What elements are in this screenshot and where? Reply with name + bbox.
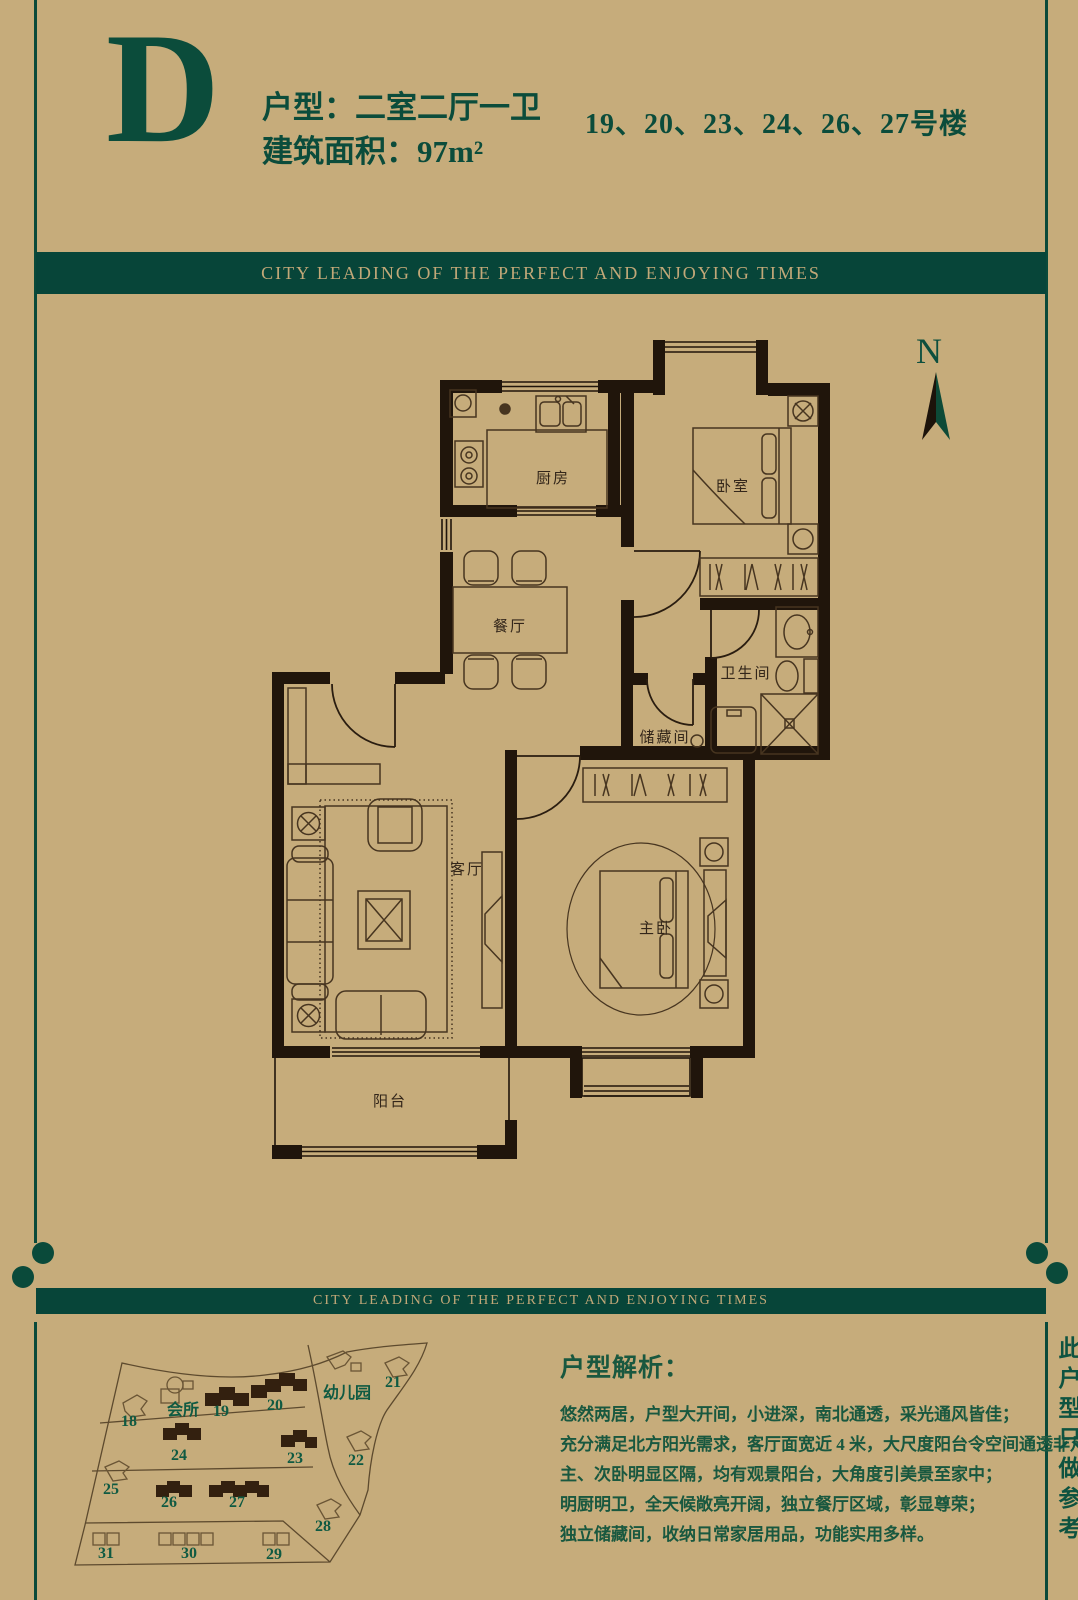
site-building-29 <box>263 1533 289 1545</box>
site-label-28: 28 <box>315 1518 331 1535</box>
site-building-20 <box>251 1373 307 1398</box>
analysis-line: 独立储藏间，收纳日常家居用品，功能实用多样。 <box>560 1520 1030 1550</box>
site-building-30 <box>159 1533 213 1545</box>
site-label-22: 22 <box>348 1452 364 1469</box>
unit-area-line: 建筑面积：97m² <box>262 126 483 171</box>
site-label-30: 30 <box>181 1545 197 1562</box>
room-label-living: 客厅 <box>450 861 484 878</box>
analysis-line: 悠然两居，户型大开间，小进深，南北通透，采光通风皆佳； <box>560 1400 1030 1430</box>
right-outer-dot <box>1046 1262 1068 1284</box>
room-label-storage: 储藏间 <box>639 729 690 746</box>
site-label-20: 20 <box>267 1397 283 1414</box>
site-building-24 <box>163 1423 201 1440</box>
site-building-clubhouse <box>161 1377 193 1403</box>
floor-plan-walls <box>272 340 830 1159</box>
left-inner-dot <box>32 1242 54 1264</box>
site-label-19: 19 <box>213 1403 229 1420</box>
site-label-26: 26 <box>161 1494 177 1511</box>
unit-type-letter: D <box>106 10 220 168</box>
side-note-vertical: 此户型只做参考 <box>1050 1336 1078 1546</box>
bottom-banner: CITY LEADING OF THE PERFECT AND ENJOYING… <box>36 1288 1046 1314</box>
site-label-25: 25 <box>103 1481 119 1498</box>
room-label-kitchen: 厨房 <box>536 470 570 487</box>
site-plan-outline-buildings <box>93 1351 409 1545</box>
flyer-page: { "page": { "bg": "#c6ac7b", "accent_gre… <box>0 0 1078 1600</box>
floor-plan: 厨房 卧室 餐厅 卫生间 储藏间 客厅 主卧 阳台 <box>258 328 842 1168</box>
room-label-dining: 餐厅 <box>493 618 527 635</box>
site-label-31: 31 <box>98 1545 114 1562</box>
analysis-block: 户型解析： 悠然两居，户型大开间，小进深，南北通透，采光通风皆佳； 充分满足北方… <box>560 1348 1030 1550</box>
site-building-31 <box>93 1533 119 1545</box>
right-frame-line-bottom <box>1045 1322 1048 1600</box>
right-frame-line-top <box>1045 0 1048 1243</box>
floor-plan-room-labels: 厨房 卧室 餐厅 卫生间 储藏间 客厅 主卧 阳台 <box>373 470 772 1110</box>
site-label-24: 24 <box>171 1447 187 1464</box>
site-label-27: 27 <box>229 1494 245 1511</box>
site-plan-boundary <box>75 1343 427 1565</box>
top-banner: CITY LEADING OF THE PERFECT AND ENJOYING… <box>36 252 1046 294</box>
left-frame-line-bottom <box>34 1322 37 1600</box>
site-building-28 <box>317 1499 341 1519</box>
room-label-balcony: 阳台 <box>373 1093 407 1110</box>
site-label-21: 21 <box>385 1374 401 1391</box>
top-banner-text: CITY LEADING OF THE PERFECT AND ENJOYING… <box>261 263 821 284</box>
room-label-master: 主卧 <box>639 920 673 937</box>
site-label-23: 23 <box>287 1450 303 1467</box>
unit-type-line: 户型：二室二厅一卫 <box>262 82 541 127</box>
left-outer-dot <box>12 1266 34 1288</box>
site-plan-map: 会所1920幼儿园211824232225262728313029 <box>55 1325 485 1575</box>
site-building-23 <box>281 1430 317 1448</box>
buildings-line: 19、20、23、24、26、27号楼 <box>585 102 968 142</box>
analysis-line: 主、次卧明显区隔，均有观景阳台，大角度引美景至家中； <box>560 1460 1030 1490</box>
site-building-22 <box>347 1431 371 1451</box>
room-label-bathroom: 卫生间 <box>720 665 771 682</box>
right-inner-dot <box>1026 1242 1048 1264</box>
room-label-bedroom: 卧室 <box>716 478 750 495</box>
analysis-line: 明厨明卫，全天候敞亮开阔，独立餐厅区域，彰显尊荣； <box>560 1490 1030 1520</box>
compass-north-arrow-icon <box>914 370 958 448</box>
site-label-29: 29 <box>266 1546 282 1563</box>
bottom-banner-text: CITY LEADING OF THE PERFECT AND ENJOYING… <box>313 1293 769 1309</box>
left-frame-line-top <box>34 0 37 1243</box>
site-label-会所: 会所 <box>167 1400 199 1419</box>
analysis-title: 户型解析： <box>560 1348 1030 1384</box>
site-label-18: 18 <box>121 1413 137 1430</box>
analysis-line: 充分满足北方阳光需求，客厅面宽近 4 米，大尺度阳台令空间通透非凡； <box>560 1430 1030 1460</box>
compass-north-label: N <box>916 330 942 372</box>
site-label-幼儿园: 幼儿园 <box>323 1383 371 1402</box>
